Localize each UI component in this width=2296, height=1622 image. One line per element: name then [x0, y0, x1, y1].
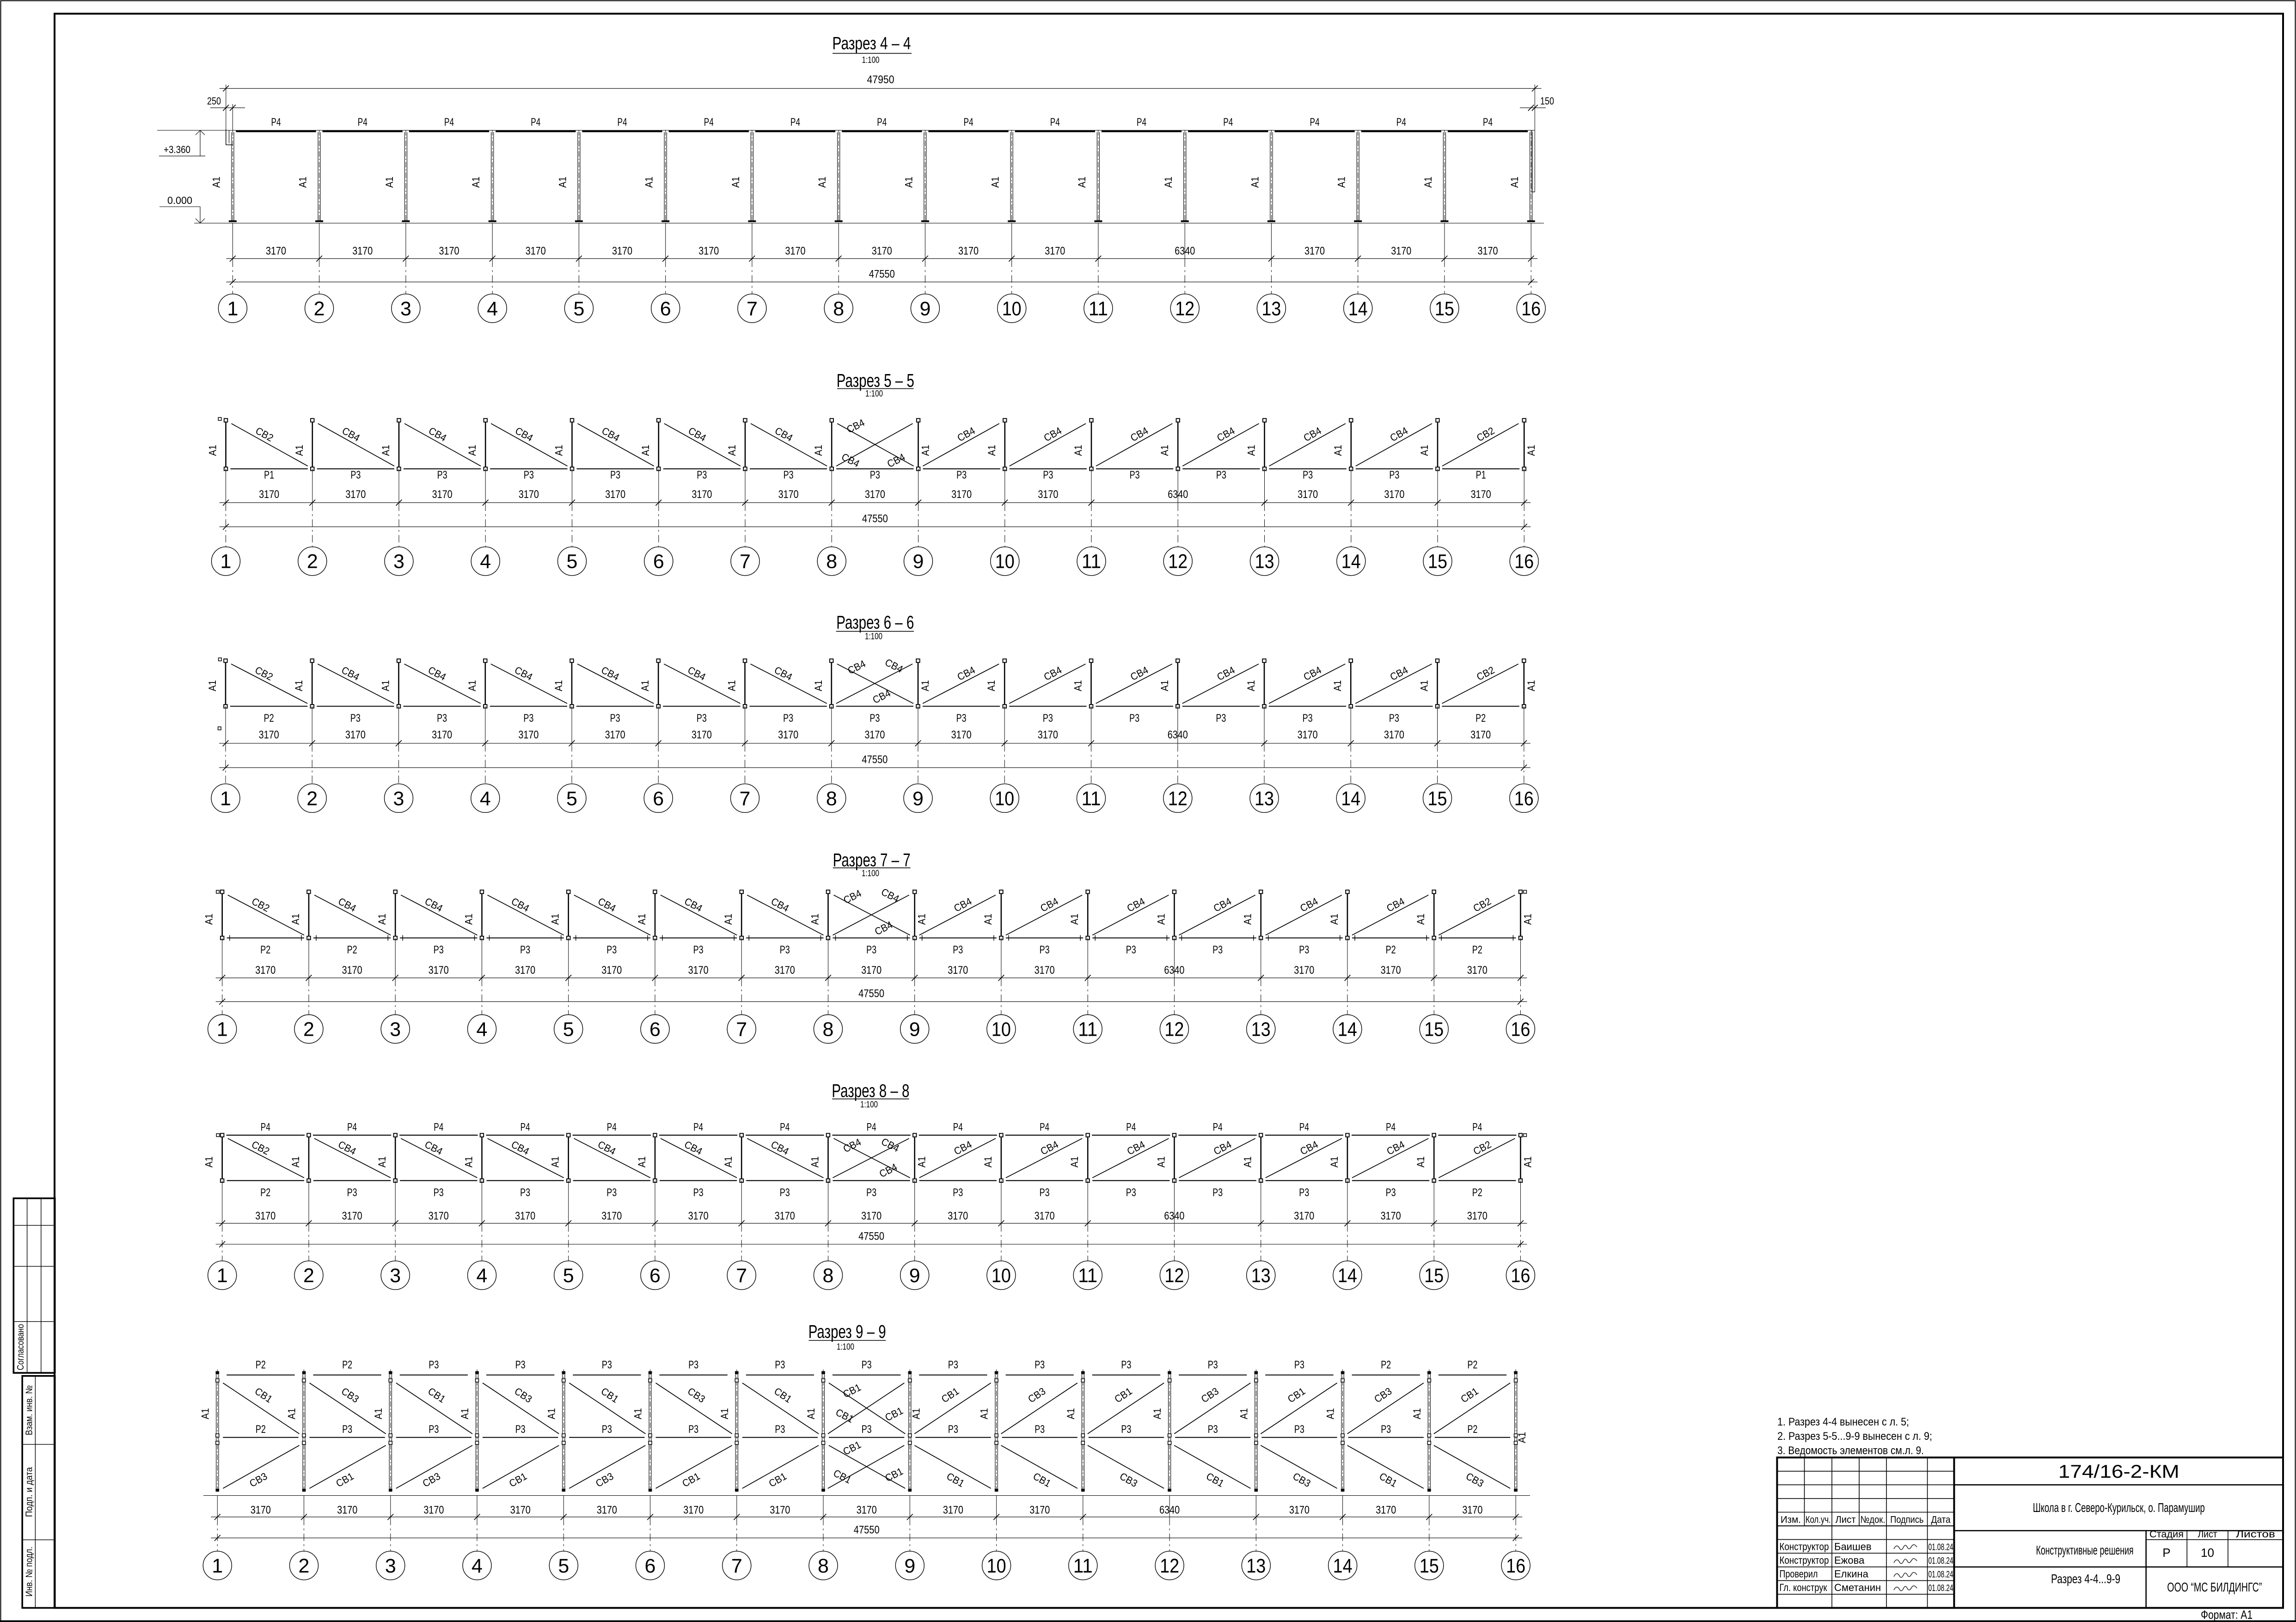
svg-text:3170: 3170	[266, 245, 286, 257]
svg-text:P4: P4	[790, 116, 800, 129]
svg-text:1: 1	[220, 787, 231, 810]
svg-text:P3: P3	[688, 1423, 698, 1436]
svg-text:P2: P2	[256, 1423, 266, 1436]
svg-text:P4: P4	[867, 1121, 876, 1134]
svg-text:47950: 47950	[867, 74, 894, 86]
svg-text:3170: 3170	[342, 1210, 362, 1223]
svg-text:A1: A1	[916, 914, 928, 925]
svg-text:P3: P3	[1043, 712, 1053, 725]
svg-text:3170: 3170	[1298, 488, 1318, 501]
svg-text:A1: A1	[1422, 177, 1434, 188]
svg-text:A1: A1	[1163, 177, 1174, 188]
svg-text:3: 3	[390, 1265, 401, 1287]
svg-text:1. Разрез 4-4 вынесен с л. 5;: 1. Разрез 4-4 вынесен с л. 5;	[1777, 1416, 1909, 1428]
svg-text:Разрез 8 – 8: Разрез 8 – 8	[832, 1081, 909, 1101]
svg-text:1: 1	[217, 1265, 228, 1287]
svg-text:Разрез 5 – 5: Разрез 5 – 5	[837, 371, 914, 391]
svg-text:01.08.24: 01.08.24	[1929, 1570, 1953, 1580]
svg-text:3170: 3170	[1381, 964, 1401, 977]
svg-text:P3: P3	[1303, 712, 1313, 725]
svg-text:P3: P3	[1129, 712, 1139, 725]
svg-text:1:100: 1:100	[865, 632, 882, 642]
svg-text:5: 5	[573, 298, 584, 320]
svg-text:16: 16	[1514, 787, 1534, 810]
svg-text:P4: P4	[531, 116, 540, 129]
svg-text:3170: 3170	[1304, 245, 1325, 257]
svg-text:P3: P3	[948, 1423, 958, 1436]
svg-text:P1: P1	[1476, 469, 1486, 481]
svg-text:Лист: Лист	[1836, 1514, 1856, 1525]
svg-text:P2: P2	[264, 712, 274, 725]
svg-text:P4: P4	[953, 1121, 963, 1134]
svg-text:174/16-2-КМ: 174/16-2-КМ	[2058, 1462, 2180, 1482]
svg-text:3170: 3170	[864, 729, 885, 741]
svg-text:8: 8	[823, 1265, 834, 1287]
svg-text:3170: 3170	[688, 1210, 709, 1223]
svg-text:Лист: Лист	[2198, 1529, 2217, 1540]
svg-text:1:100: 1:100	[837, 1342, 854, 1352]
svg-text:3170: 3170	[1035, 1210, 1055, 1223]
svg-text:3170: 3170	[1045, 245, 1065, 257]
svg-text:3170: 3170	[605, 729, 625, 741]
svg-text:7: 7	[740, 787, 751, 810]
svg-text:A1: A1	[1245, 680, 1257, 691]
svg-text:3170: 3170	[597, 1504, 617, 1517]
svg-text:3170: 3170	[1298, 729, 1318, 741]
svg-text:11: 11	[1073, 1555, 1093, 1577]
svg-text:A1: A1	[805, 1408, 817, 1419]
svg-text:3170: 3170	[1294, 964, 1314, 977]
svg-text:3170: 3170	[259, 729, 279, 741]
svg-text:A1: A1	[1151, 1408, 1163, 1419]
svg-text:P4: P4	[1386, 1121, 1396, 1134]
svg-text:Формат: А1: Формат: А1	[2201, 1608, 2253, 1622]
svg-text:P4: P4	[1483, 116, 1493, 129]
svg-text:9: 9	[913, 551, 924, 573]
svg-text:10: 10	[995, 551, 1015, 573]
svg-text:Разрез 9 – 9: Разрез 9 – 9	[808, 1322, 886, 1342]
svg-text:A1: A1	[1415, 1156, 1427, 1167]
svg-text:A1: A1	[1155, 914, 1167, 925]
svg-text:P2: P2	[342, 1359, 352, 1371]
svg-text:Листов: Листов	[2236, 1529, 2275, 1540]
svg-text:8: 8	[826, 787, 837, 810]
svg-text:P3: P3	[948, 1359, 958, 1371]
svg-text:P3: P3	[697, 712, 707, 725]
svg-text:3170: 3170	[1462, 1504, 1482, 1517]
svg-text:15: 15	[1424, 1019, 1444, 1041]
svg-text:P3: P3	[956, 469, 967, 481]
svg-text:P3: P3	[1040, 944, 1050, 956]
svg-text:P3: P3	[1208, 1359, 1218, 1371]
svg-text:Проверил: Проверил	[1779, 1568, 1818, 1580]
svg-text:P3: P3	[783, 712, 793, 725]
svg-text:3170: 3170	[255, 964, 276, 977]
svg-text:14: 14	[1348, 298, 1368, 320]
svg-text:P4: P4	[780, 1121, 790, 1134]
svg-text:A1: A1	[986, 445, 998, 456]
svg-text:0.000: 0.000	[167, 195, 192, 206]
svg-text:P3: P3	[1386, 1186, 1396, 1199]
svg-text:A1: A1	[1525, 445, 1537, 456]
svg-text:P4: P4	[1472, 1121, 1482, 1134]
svg-text:A1: A1	[1065, 1408, 1077, 1419]
svg-text:13: 13	[1246, 1555, 1266, 1577]
svg-text:P3: P3	[1212, 1186, 1223, 1199]
svg-text:A1: A1	[203, 1156, 215, 1167]
svg-text:P3: P3	[1043, 469, 1053, 481]
svg-text:P3: P3	[693, 944, 704, 956]
svg-text:3170: 3170	[943, 1504, 963, 1517]
svg-text:3170: 3170	[515, 964, 535, 977]
svg-text:Конструктор: Конструктор	[1779, 1554, 1829, 1566]
svg-text:13: 13	[1255, 787, 1274, 810]
svg-text:P4: P4	[607, 1121, 617, 1134]
svg-text:A1: A1	[290, 1156, 301, 1167]
svg-text:13: 13	[1251, 1265, 1271, 1287]
svg-text:Ежова: Ежова	[1834, 1554, 1865, 1566]
svg-text:47550: 47550	[858, 988, 884, 1000]
svg-text:3170: 3170	[515, 1210, 535, 1223]
svg-text:3170: 3170	[1038, 729, 1058, 741]
svg-text:250: 250	[207, 95, 221, 107]
svg-text:5: 5	[563, 1019, 574, 1041]
svg-text:P3: P3	[953, 1186, 963, 1199]
svg-text:A1: A1	[1246, 445, 1257, 456]
svg-text:3170: 3170	[352, 245, 373, 257]
svg-text:A1: A1	[726, 680, 738, 691]
svg-text:A1: A1	[1419, 680, 1430, 691]
svg-text:3170: 3170	[865, 488, 885, 501]
svg-text:3170: 3170	[683, 1504, 704, 1517]
svg-text:A1: A1	[553, 445, 565, 456]
svg-text:P3: P3	[862, 1359, 872, 1371]
svg-text:P3: P3	[602, 1359, 612, 1371]
svg-text:A1: A1	[636, 1156, 648, 1167]
svg-text:3170: 3170	[345, 729, 366, 741]
svg-text:6: 6	[645, 1555, 656, 1577]
svg-text:P3: P3	[434, 1186, 444, 1199]
svg-text:P4: P4	[693, 1121, 703, 1134]
svg-text:A1: A1	[1522, 1156, 1533, 1167]
svg-text:Разрез 7 – 7: Разрез 7 – 7	[833, 850, 911, 871]
svg-text:P3: P3	[1294, 1423, 1304, 1436]
svg-text:A1: A1	[816, 177, 828, 188]
svg-text:P3: P3	[1299, 944, 1309, 956]
svg-text:12: 12	[1164, 1265, 1184, 1287]
svg-text:3170: 3170	[872, 245, 892, 257]
svg-text:P4: P4	[520, 1121, 530, 1134]
svg-text:P3: P3	[1035, 1423, 1045, 1436]
svg-text:3170: 3170	[778, 729, 798, 741]
svg-text:16: 16	[1506, 1555, 1525, 1577]
svg-text:P3: P3	[524, 469, 534, 481]
svg-text:3170: 3170	[1467, 1210, 1488, 1223]
svg-text:A1: A1	[919, 680, 931, 691]
svg-text:A1: A1	[1069, 914, 1080, 925]
svg-text:12: 12	[1164, 1019, 1184, 1041]
svg-text:P3: P3	[520, 1186, 530, 1199]
svg-text:7: 7	[736, 1265, 747, 1287]
svg-text:11: 11	[1089, 298, 1108, 320]
svg-text:A1: A1	[809, 1156, 821, 1167]
svg-text:№док.: №док.	[1861, 1514, 1886, 1525]
svg-text:P3: P3	[523, 712, 533, 725]
svg-text:4: 4	[480, 551, 491, 573]
svg-text:5: 5	[563, 1265, 574, 1287]
svg-text:15: 15	[1420, 1555, 1439, 1577]
svg-text:3170: 3170	[345, 488, 366, 501]
svg-text:A1: A1	[463, 914, 475, 925]
svg-text:P3: P3	[1216, 469, 1226, 481]
svg-text:P3: P3	[1126, 944, 1136, 956]
svg-text:P3: P3	[688, 1359, 698, 1371]
svg-text:14: 14	[1338, 1019, 1357, 1041]
svg-text:A1: A1	[640, 445, 651, 456]
svg-text:Конструктивные решения: Конструктивные решения	[2036, 1543, 2134, 1557]
svg-text:1:100: 1:100	[862, 55, 880, 65]
svg-text:3170: 3170	[1467, 964, 1488, 977]
svg-text:3170: 3170	[692, 729, 712, 741]
svg-text:Согласовано: Согласовано	[16, 1324, 26, 1370]
svg-text:3170: 3170	[519, 488, 539, 501]
svg-text:A1: A1	[290, 914, 301, 925]
svg-text:9: 9	[909, 1265, 920, 1287]
svg-text:P3: P3	[775, 1359, 785, 1371]
svg-text:3170: 3170	[612, 245, 632, 257]
svg-text:1: 1	[212, 1555, 223, 1577]
svg-text:14: 14	[1341, 787, 1360, 810]
svg-text:P3: P3	[347, 1186, 357, 1199]
svg-text:+3.360: +3.360	[164, 144, 190, 155]
svg-text:2: 2	[303, 1019, 314, 1041]
svg-text:5: 5	[558, 1555, 569, 1577]
svg-text:6: 6	[653, 787, 664, 810]
svg-text:10: 10	[987, 1555, 1006, 1577]
svg-text:3: 3	[400, 298, 411, 320]
svg-text:3170: 3170	[951, 488, 972, 501]
svg-text:4: 4	[471, 1555, 483, 1577]
svg-text:A1: A1	[726, 445, 738, 456]
svg-text:Подп. и дата: Подп. и дата	[24, 1467, 34, 1517]
svg-text:P4: P4	[358, 116, 367, 129]
svg-text:Конструктор: Конструктор	[1779, 1541, 1829, 1552]
svg-text:150: 150	[1540, 95, 1554, 107]
svg-text:A1: A1	[1159, 680, 1170, 691]
svg-text:A1: A1	[910, 1408, 922, 1419]
svg-text:Елкина: Елкина	[1834, 1568, 1869, 1580]
svg-text:11: 11	[1078, 1265, 1097, 1287]
svg-text:A1: A1	[550, 914, 561, 925]
svg-text:Взам. инв. №: Взам. инв. №	[24, 1385, 34, 1435]
svg-text:A1: A1	[643, 177, 655, 188]
svg-text:P3: P3	[866, 1186, 876, 1199]
svg-text:3170: 3170	[1038, 488, 1058, 501]
svg-text:3: 3	[393, 551, 404, 573]
svg-text:A1: A1	[1522, 914, 1533, 925]
svg-text:47550: 47550	[862, 513, 888, 525]
svg-text:47550: 47550	[862, 753, 888, 766]
svg-text:13: 13	[1251, 1019, 1271, 1041]
svg-text:A1: A1	[373, 1408, 384, 1419]
svg-text:P4: P4	[1050, 116, 1060, 129]
svg-text:A1: A1	[207, 680, 218, 691]
svg-text:A1: A1	[1525, 680, 1537, 691]
svg-text:47550: 47550	[858, 1230, 884, 1242]
svg-text:A1: A1	[1249, 177, 1261, 188]
svg-text:3170: 3170	[605, 488, 625, 501]
svg-text:A1: A1	[210, 177, 222, 188]
svg-text:12: 12	[1168, 551, 1188, 573]
svg-text:11: 11	[1082, 551, 1101, 573]
svg-text:3170: 3170	[948, 1210, 968, 1223]
svg-text:13: 13	[1261, 298, 1281, 320]
svg-text:P3: P3	[1294, 1359, 1304, 1371]
svg-text:3170: 3170	[692, 488, 712, 501]
svg-text:8: 8	[826, 551, 837, 573]
svg-text:1: 1	[217, 1019, 228, 1041]
svg-text:P4: P4	[1040, 1121, 1049, 1134]
svg-text:3170: 3170	[785, 245, 806, 257]
svg-text:P3: P3	[953, 944, 963, 956]
svg-text:1:100: 1:100	[862, 869, 879, 879]
svg-text:P2: P2	[1467, 1359, 1477, 1371]
svg-text:8: 8	[823, 1019, 834, 1041]
svg-text:Кол.уч.: Кол.уч.	[1806, 1514, 1831, 1525]
svg-text:3170: 3170	[429, 1210, 449, 1223]
svg-text:3170: 3170	[337, 1504, 357, 1517]
svg-text:2: 2	[306, 787, 318, 810]
svg-text:10: 10	[2201, 1546, 2214, 1560]
svg-text:A1: A1	[1242, 1156, 1254, 1167]
svg-text:3170: 3170	[1470, 729, 1491, 741]
svg-text:P3: P3	[1216, 712, 1226, 725]
svg-text:P4: P4	[1126, 1121, 1136, 1134]
svg-text:P4: P4	[1299, 1121, 1309, 1134]
svg-text:3170: 3170	[429, 964, 449, 977]
svg-text:13: 13	[1255, 551, 1274, 573]
svg-text:A1: A1	[293, 680, 305, 691]
svg-text:14: 14	[1338, 1265, 1357, 1287]
svg-text:A1: A1	[1242, 914, 1254, 925]
svg-text:P4: P4	[1213, 1121, 1223, 1134]
svg-text:14: 14	[1333, 1555, 1353, 1577]
svg-text:1: 1	[220, 551, 232, 573]
svg-text:A1: A1	[809, 914, 821, 925]
svg-text:3170: 3170	[518, 729, 539, 741]
svg-text:A1: A1	[1329, 914, 1340, 925]
svg-text:A1: A1	[979, 1408, 990, 1419]
svg-text:P3: P3	[1381, 1423, 1391, 1436]
svg-text:A1: A1	[459, 1408, 471, 1419]
svg-text:2. Разрез 5-5...9-9 вынесен с: 2. Разрез 5-5...9-9 вынесен с л. 9;	[1777, 1430, 1932, 1443]
svg-text:P4: P4	[271, 116, 281, 129]
svg-text:P4: P4	[704, 116, 714, 129]
svg-text:P3: P3	[869, 712, 880, 725]
svg-text:8: 8	[818, 1555, 829, 1577]
svg-text:15: 15	[1435, 298, 1454, 320]
svg-text:3170: 3170	[432, 488, 453, 501]
svg-text:P1: P1	[264, 469, 274, 481]
svg-text:15: 15	[1428, 551, 1447, 573]
svg-text:A1: A1	[982, 1156, 994, 1167]
svg-text:16: 16	[1511, 1265, 1530, 1287]
svg-text:A1: A1	[376, 914, 388, 925]
svg-text:10: 10	[1002, 298, 1022, 320]
svg-text:P3: P3	[606, 1186, 617, 1199]
svg-text:7: 7	[747, 298, 758, 320]
svg-text:A1: A1	[1155, 1156, 1167, 1167]
svg-text:3170: 3170	[1294, 1210, 1314, 1223]
svg-text:P3: P3	[1299, 1186, 1309, 1199]
svg-text:A1: A1	[1325, 1408, 1336, 1419]
svg-text:A1: A1	[470, 177, 482, 188]
svg-text:P2: P2	[260, 1186, 270, 1199]
svg-text:5: 5	[566, 787, 577, 810]
svg-text:P3: P3	[350, 469, 361, 481]
svg-text:14: 14	[1341, 551, 1361, 573]
svg-text:11: 11	[1082, 787, 1101, 810]
svg-text:3170: 3170	[958, 245, 979, 257]
svg-text:P3: P3	[520, 944, 530, 956]
svg-text:A1: A1	[722, 1156, 734, 1167]
svg-text:Подпись: Подпись	[1890, 1514, 1923, 1525]
svg-text:1: 1	[227, 298, 238, 320]
svg-text:A1: A1	[813, 445, 824, 456]
svg-text:4: 4	[480, 787, 491, 810]
svg-text:3170: 3170	[775, 964, 795, 977]
svg-text:3170: 3170	[698, 245, 719, 257]
svg-text:A1: A1	[636, 914, 648, 925]
svg-text:P2: P2	[1467, 1423, 1477, 1436]
svg-text:3. Ведомость элементов см.л. 9: 3. Ведомость элементов см.л. 9.	[1777, 1444, 1924, 1457]
svg-text:Р: Р	[2162, 1546, 2170, 1560]
svg-text:2: 2	[303, 1265, 314, 1287]
svg-text:Разрез 4-4...9-9: Разрез 4-4...9-9	[2051, 1572, 2120, 1586]
svg-text:A1: A1	[1329, 1156, 1340, 1167]
svg-text:A1: A1	[639, 680, 651, 691]
svg-text:47550: 47550	[854, 1524, 880, 1536]
svg-text:P3: P3	[780, 1186, 790, 1199]
svg-text:2: 2	[314, 298, 325, 320]
svg-text:16: 16	[1521, 298, 1541, 320]
svg-text:3: 3	[393, 787, 404, 810]
svg-text:A1: A1	[1159, 445, 1170, 456]
svg-text:3170: 3170	[1384, 488, 1404, 501]
svg-text:3170: 3170	[857, 1504, 877, 1517]
svg-text:A1: A1	[1072, 680, 1084, 691]
svg-text:3170: 3170	[255, 1210, 276, 1223]
svg-text:Разрез 4 – 4: Разрез 4 – 4	[833, 34, 911, 54]
svg-text:A1: A1	[920, 445, 931, 456]
svg-text:P3: P3	[610, 469, 620, 481]
svg-text:P3: P3	[870, 469, 880, 481]
svg-text:Гл. конструк: Гл. конструк	[1779, 1582, 1827, 1593]
svg-text:Разрез 6 – 6: Разрез 6 – 6	[836, 613, 914, 633]
svg-text:P3: P3	[1212, 944, 1223, 956]
svg-text:15: 15	[1428, 787, 1447, 810]
svg-text:A1: A1	[990, 177, 1001, 188]
svg-text:7: 7	[736, 1019, 747, 1041]
svg-text:Школа в г. Северо-Курильск, о.: Школа в г. Северо-Курильск, о. Парамушир	[2033, 1500, 2205, 1515]
svg-text:16: 16	[1514, 551, 1534, 573]
svg-text:P4: P4	[347, 1121, 357, 1134]
svg-text:P4: P4	[444, 116, 454, 129]
svg-text:P3: P3	[1126, 1186, 1136, 1199]
svg-text:P2: P2	[256, 1359, 266, 1371]
svg-text:A1: A1	[982, 914, 994, 925]
svg-text:A1: A1	[466, 445, 478, 456]
